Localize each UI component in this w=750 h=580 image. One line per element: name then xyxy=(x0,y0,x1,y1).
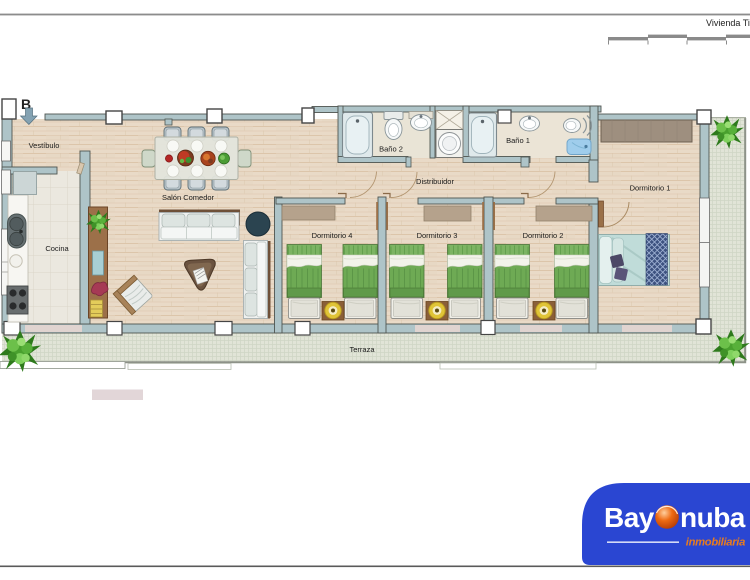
svg-text:Vivienda Tipo B: Vivienda Tipo B xyxy=(706,18,750,28)
svg-text:Bay: Bay xyxy=(604,502,655,533)
svg-text:Salón Comedor: Salón Comedor xyxy=(162,193,215,202)
svg-text:Baño 1: Baño 1 xyxy=(506,136,530,145)
svg-text:Terraza: Terraza xyxy=(349,345,375,354)
svg-text:Dormitorio 3: Dormitorio 3 xyxy=(417,231,458,240)
svg-text:Cocina: Cocina xyxy=(45,244,69,253)
svg-text:Baño 2: Baño 2 xyxy=(379,145,403,154)
svg-text:Dormitorio 4: Dormitorio 4 xyxy=(312,231,353,240)
svg-text:Vestíbulo: Vestíbulo xyxy=(29,141,60,150)
svg-text:Dormitorio 1: Dormitorio 1 xyxy=(630,184,671,193)
svg-text:Distribuidor: Distribuidor xyxy=(416,177,454,186)
svg-text:nuba: nuba xyxy=(680,502,746,533)
svg-text:inmobiliaria: inmobiliaria xyxy=(686,537,745,549)
svg-text:Dormitorio 2: Dormitorio 2 xyxy=(523,231,564,240)
